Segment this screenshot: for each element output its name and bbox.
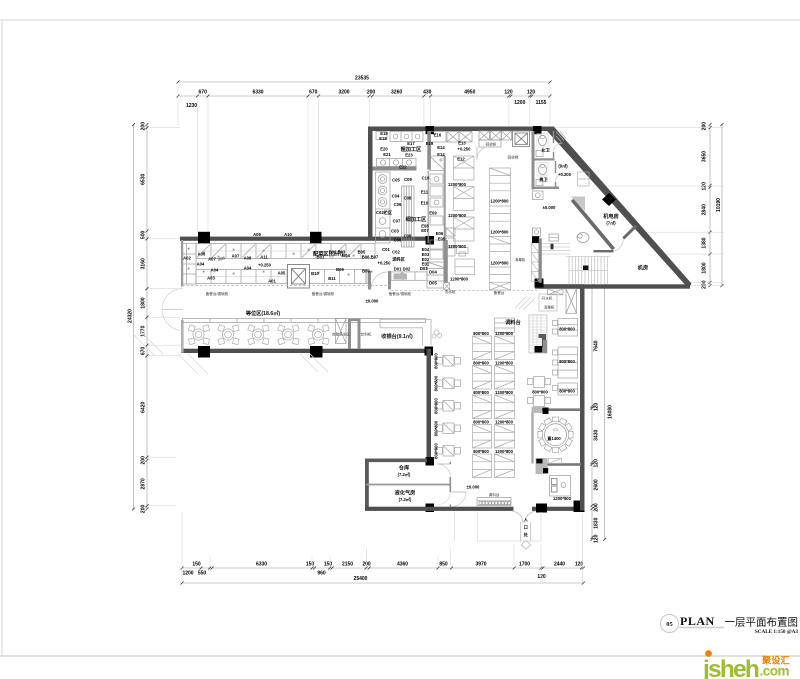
svg-text:入: 入 xyxy=(523,517,529,522)
svg-text:C02: C02 xyxy=(392,250,400,255)
svg-text:800*800: 800*800 xyxy=(473,331,489,336)
svg-text:1200*800: 1200*800 xyxy=(450,277,469,282)
svg-text:备餐台/锅碗柜: 备餐台/锅碗柜 xyxy=(312,291,335,296)
svg-text:6420: 6420 xyxy=(141,402,147,413)
svg-text:D01 D02: D01 D02 xyxy=(394,267,411,272)
svg-text:+0.250: +0.250 xyxy=(378,261,392,266)
svg-text:备餐台/锅碗柜: 备餐台/锅碗柜 xyxy=(389,291,412,296)
svg-text:550: 550 xyxy=(198,571,207,577)
svg-text:±0.000: ±0.000 xyxy=(543,205,556,210)
svg-text:1200: 1200 xyxy=(182,571,193,577)
svg-text:200: 200 xyxy=(141,456,147,465)
svg-text:2150: 2150 xyxy=(342,562,353,568)
svg-text:一层平面布置图: 一层平面布置图 xyxy=(725,617,799,629)
svg-text:备餐台: 备餐台 xyxy=(494,290,505,295)
svg-text:E21: E21 xyxy=(383,152,391,157)
svg-text:2440: 2440 xyxy=(554,562,565,568)
svg-text:A09: A09 xyxy=(253,232,261,237)
svg-text:细加工区: 细加工区 xyxy=(406,215,428,223)
svg-text:1200*800: 1200*800 xyxy=(495,390,514,395)
svg-text:120: 120 xyxy=(594,459,600,468)
svg-text:E07: E07 xyxy=(421,228,429,233)
svg-text:6530: 6530 xyxy=(141,174,147,185)
svg-text:C06: C06 xyxy=(394,238,402,243)
svg-text:1200*800: 1200*800 xyxy=(495,360,514,365)
svg-text:4950: 4950 xyxy=(464,90,475,96)
svg-text:C09: C09 xyxy=(404,177,412,182)
svg-text:120: 120 xyxy=(527,90,536,96)
svg-text:E23: E23 xyxy=(405,153,413,158)
svg-text:E11: E11 xyxy=(421,190,429,195)
svg-text:A04: A04 xyxy=(197,262,205,267)
svg-text:C07: C07 xyxy=(393,219,401,224)
svg-text:女卫: 女卫 xyxy=(541,147,550,154)
svg-text:6330: 6330 xyxy=(256,562,267,568)
svg-text:+0.250: +0.250 xyxy=(458,147,472,152)
svg-text:B09: B09 xyxy=(336,267,344,272)
svg-text:C04: C04 xyxy=(392,194,400,199)
svg-text:6330: 6330 xyxy=(252,90,263,96)
svg-text:聚设汇: 聚设汇 xyxy=(761,655,790,666)
svg-text:自助茶水区: 自助茶水区 xyxy=(332,332,350,337)
svg-text:A02: A02 xyxy=(183,256,191,261)
svg-text:3200: 3200 xyxy=(338,90,349,96)
svg-text:23535: 23535 xyxy=(355,76,369,82)
svg-text:1200: 1200 xyxy=(514,100,525,106)
svg-text:24320: 24320 xyxy=(128,309,134,323)
svg-text:收银台(9.1㎡): 收银台(9.1㎡) xyxy=(381,332,413,340)
svg-text:C06: C06 xyxy=(394,202,402,207)
svg-text:1200*800: 1200*800 xyxy=(491,261,510,266)
svg-text:960: 960 xyxy=(317,571,326,577)
svg-text:E13: E13 xyxy=(458,141,466,146)
svg-text:850: 850 xyxy=(439,562,448,568)
svg-text:150: 150 xyxy=(306,562,315,568)
svg-text:B09: B09 xyxy=(362,268,370,273)
svg-text:+0.200: +0.200 xyxy=(558,172,572,177)
svg-text:1800: 1800 xyxy=(702,262,708,273)
svg-text:jsheh: jsheh xyxy=(702,656,759,679)
svg-text:4360: 4360 xyxy=(397,562,408,568)
svg-text:120: 120 xyxy=(594,534,600,543)
svg-text:800*800: 800*800 xyxy=(559,389,575,394)
svg-text:C05: C05 xyxy=(392,178,400,183)
svg-text:回收梯: 回收梯 xyxy=(508,155,519,160)
svg-text:150: 150 xyxy=(192,562,201,568)
svg-text:200: 200 xyxy=(702,280,708,289)
svg-text:120: 120 xyxy=(575,562,584,568)
svg-text:200: 200 xyxy=(702,122,708,131)
svg-text:C01: C01 xyxy=(382,247,390,252)
svg-text:500: 500 xyxy=(141,231,147,240)
svg-text:处: 处 xyxy=(523,531,529,538)
svg-text:调料台: 调料台 xyxy=(505,318,521,326)
svg-text:液化气房: 液化气房 xyxy=(395,489,416,497)
svg-text:回收柜: 回收柜 xyxy=(486,142,497,147)
svg-text:B10: B10 xyxy=(311,271,319,276)
svg-text:E22: E22 xyxy=(399,165,407,170)
svg-text:C02贮区: C02贮区 xyxy=(376,209,393,216)
svg-text:800*800: 800*800 xyxy=(434,398,439,414)
svg-text:等位区(18.6㎡): 等位区(18.6㎡) xyxy=(245,309,281,317)
svg-text:200: 200 xyxy=(141,505,147,514)
svg-text:1200*800: 1200*800 xyxy=(448,244,467,249)
svg-text:E14: E14 xyxy=(437,152,445,157)
svg-text:800*800: 800*800 xyxy=(434,353,439,369)
svg-text:A07: A07 xyxy=(232,254,240,259)
svg-text:洗水柜: 洗水柜 xyxy=(445,289,456,294)
svg-text:(7.2㎡): (7.2㎡) xyxy=(398,471,411,477)
svg-text:800*800: 800*800 xyxy=(434,420,439,436)
svg-text:1200*800: 1200*800 xyxy=(491,199,510,204)
svg-text:A06: A06 xyxy=(198,252,206,257)
svg-text:10190: 10190 xyxy=(716,198,722,212)
svg-text:1700: 1700 xyxy=(519,562,530,568)
svg-text:3430: 3430 xyxy=(594,430,600,441)
svg-text:670: 670 xyxy=(199,90,208,96)
svg-text:05: 05 xyxy=(666,621,673,628)
svg-text:E14: E14 xyxy=(437,145,445,150)
svg-text:+0.250: +0.250 xyxy=(258,263,272,268)
svg-text:1200*800: 1200*800 xyxy=(495,449,514,454)
svg-text:调料台: 调料台 xyxy=(489,492,500,497)
svg-text:±0.000: ±0.000 xyxy=(366,299,379,304)
svg-text:A04: A04 xyxy=(244,265,252,270)
svg-text:670: 670 xyxy=(141,347,147,356)
svg-text:1200*800: 1200*800 xyxy=(491,230,510,235)
svg-text:开水机: 开水机 xyxy=(542,296,553,301)
svg-text:3260: 3260 xyxy=(391,90,402,96)
svg-text:800*800: 800*800 xyxy=(559,327,575,332)
svg-text:C08: C08 xyxy=(404,196,412,201)
svg-text:150: 150 xyxy=(324,562,333,568)
svg-text:25400: 25400 xyxy=(354,576,368,582)
svg-text:800*800: 800*800 xyxy=(532,390,548,395)
svg-text:消毒柜: 消毒柜 xyxy=(515,257,526,262)
svg-text:7640: 7640 xyxy=(594,340,600,351)
svg-text:A01: A01 xyxy=(268,279,276,284)
svg-text:送码区: 送码区 xyxy=(391,256,405,263)
svg-text:C10: C10 xyxy=(422,176,430,181)
svg-text:3650: 3650 xyxy=(702,151,708,162)
svg-text:16080: 16080 xyxy=(608,405,614,419)
svg-text:E10: E10 xyxy=(421,201,429,206)
svg-text:PLAN: PLAN xyxy=(680,614,715,628)
svg-text:E09: E09 xyxy=(429,211,437,216)
svg-text:800*800: 800*800 xyxy=(434,443,439,459)
svg-text:(7.2㎡): (7.2㎡) xyxy=(399,496,412,502)
svg-text:直1400: 直1400 xyxy=(547,435,561,442)
svg-text:A11: A11 xyxy=(260,254,268,259)
svg-text:3160: 3160 xyxy=(141,258,147,269)
svg-text:1200*800: 1200*800 xyxy=(448,213,467,218)
svg-text:E19: E19 xyxy=(426,141,434,146)
svg-text:A07: A07 xyxy=(208,257,216,262)
svg-text:1155: 1155 xyxy=(536,100,547,106)
svg-text:670: 670 xyxy=(309,90,318,96)
svg-text:1800: 1800 xyxy=(141,297,147,308)
svg-text:E18: E18 xyxy=(379,136,387,141)
svg-text:.com: .com xyxy=(760,664,790,679)
svg-text:2840: 2840 xyxy=(702,204,708,215)
svg-text:E16: E16 xyxy=(434,133,442,138)
svg-text:机房: 机房 xyxy=(638,264,648,272)
svg-text:1200*800: 1200*800 xyxy=(495,419,514,424)
svg-text:E20: E20 xyxy=(380,147,388,152)
svg-text:800*800: 800*800 xyxy=(473,360,489,365)
svg-text:2600: 2600 xyxy=(594,479,600,490)
svg-text:B06 B07: B06 B07 xyxy=(362,254,379,259)
svg-text:(9㎡): (9㎡) xyxy=(558,163,568,169)
svg-text:B04: B04 xyxy=(342,253,350,258)
svg-text:200: 200 xyxy=(141,122,147,131)
svg-text:±0.000: ±0.000 xyxy=(467,485,480,490)
svg-text:机电房: 机电房 xyxy=(603,212,619,220)
svg-text:800*800: 800*800 xyxy=(473,449,489,454)
svg-text:消毒柜: 消毒柜 xyxy=(544,305,555,310)
svg-text:1200*800: 1200*800 xyxy=(495,331,514,336)
svg-text:(7㎡): (7㎡) xyxy=(606,220,616,226)
svg-text:A08: A08 xyxy=(244,256,252,261)
svg-text:D04: D04 xyxy=(429,270,437,275)
svg-text:3970: 3970 xyxy=(475,562,486,568)
svg-text:仓库: 仓库 xyxy=(398,464,410,472)
svg-text:800*800: 800*800 xyxy=(559,359,575,364)
svg-text:120: 120 xyxy=(504,90,513,96)
svg-text:120: 120 xyxy=(594,403,600,412)
svg-text:E06: E06 xyxy=(436,231,444,236)
svg-text:1200*800: 1200*800 xyxy=(553,496,572,501)
svg-text:C08: C08 xyxy=(404,234,412,239)
svg-text:A04: A04 xyxy=(211,268,219,273)
svg-text:1380: 1380 xyxy=(702,237,708,248)
svg-text:200: 200 xyxy=(367,90,376,96)
svg-text:SCALE 1:150 @A3: SCALE 1:150 @A3 xyxy=(755,629,799,635)
svg-text:2870: 2870 xyxy=(141,478,147,489)
svg-text:D03: D03 xyxy=(420,266,428,271)
svg-text:800*800: 800*800 xyxy=(473,419,489,424)
svg-text:D05: D05 xyxy=(429,281,437,286)
svg-text:800*800: 800*800 xyxy=(473,390,489,395)
svg-text:E12: E12 xyxy=(457,157,465,162)
svg-text:1230: 1230 xyxy=(186,103,197,109)
svg-text:A05: A05 xyxy=(278,271,286,276)
svg-text:1830: 1830 xyxy=(594,517,600,528)
svg-text:1200*800: 1200*800 xyxy=(448,182,467,187)
svg-text:备餐台/锅碗柜: 备餐台/锅碗柜 xyxy=(206,291,229,296)
svg-text:200: 200 xyxy=(594,503,600,512)
svg-text:C03: C03 xyxy=(391,229,399,234)
svg-text:120: 120 xyxy=(537,574,546,580)
svg-text:B01: B01 xyxy=(317,255,325,260)
svg-text:A03: A03 xyxy=(207,276,215,281)
svg-text:E05: E05 xyxy=(438,237,446,242)
svg-text:E17: E17 xyxy=(407,141,415,146)
svg-text:A10: A10 xyxy=(284,232,292,237)
svg-text:430: 430 xyxy=(423,90,432,96)
svg-text:800*800: 800*800 xyxy=(434,375,439,391)
svg-text:男卫: 男卫 xyxy=(539,176,548,183)
svg-text:B11: B11 xyxy=(328,276,336,281)
svg-text:饮料机: 饮料机 xyxy=(361,332,372,337)
